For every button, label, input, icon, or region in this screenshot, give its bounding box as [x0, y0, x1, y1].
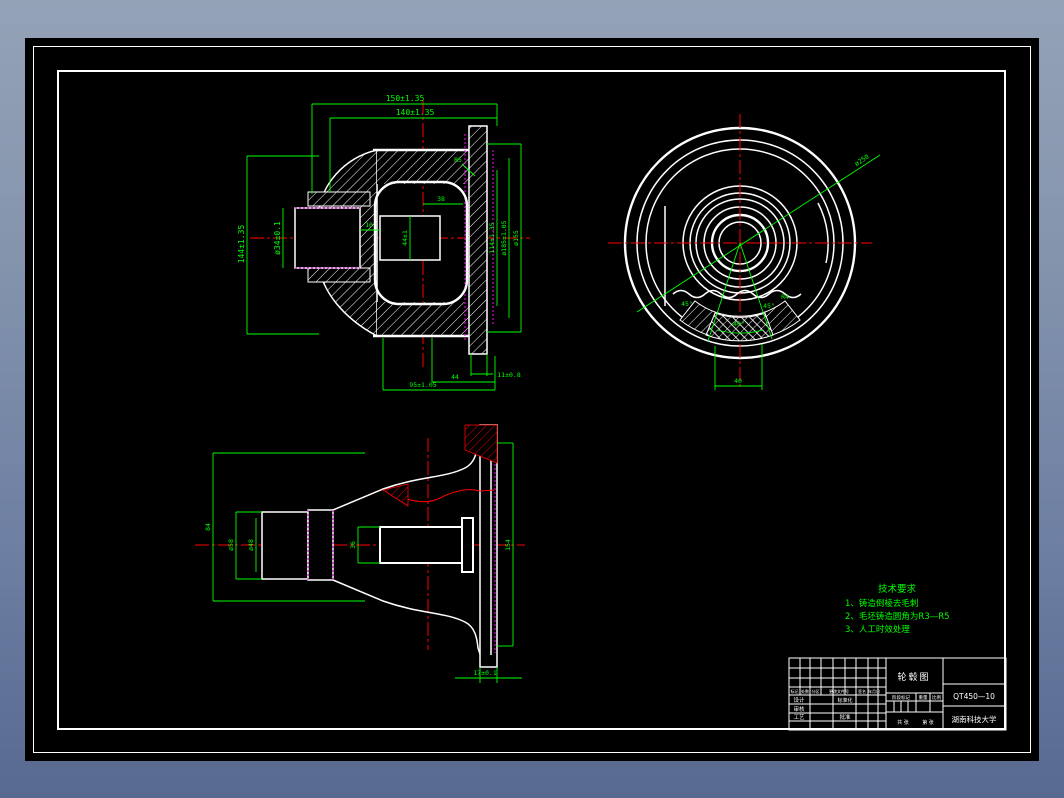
dim-pitch-dia: ø155 [512, 230, 520, 246]
dim-slot: 36 [349, 541, 357, 549]
tech-requirement-item: 1、铸造倒棱去毛刺 [845, 598, 918, 609]
dim-fillet-r5: R5 [454, 156, 462, 164]
label-standardization: 标准化 [837, 697, 852, 704]
label-weight: 重量 [919, 694, 928, 701]
dim-height-left: 144±1.35 [237, 225, 246, 264]
side-view: 84 ø58 ø48 36 154 17±0.1 [195, 425, 525, 683]
front-view: ø250 40° 45° 45° R4 40 [608, 114, 880, 390]
title-block: 轮毂图 QT450—10 湖南科技大学 标记 处数 分区 更改文件号 签名 年月… [789, 658, 1006, 730]
dim-width-inner: 140±1.35 [396, 108, 435, 117]
label-zone: 分区 [812, 688, 820, 694]
dim-boss-len: 84 [204, 523, 212, 531]
label-review: 审核 [793, 705, 805, 713]
label-signature: 签名 [858, 688, 866, 694]
label-scale: 比例 [932, 694, 941, 701]
label-change-file: 更改文件号 [829, 688, 849, 694]
dim-step: 10 [365, 221, 373, 229]
dim-bore: 44±1 [401, 230, 409, 246]
dim-bottom-outer: 95±1.05 [409, 381, 436, 389]
dim-width-outer: 150±1.35 [386, 94, 425, 103]
drawing-name: 轮毂图 [897, 671, 930, 683]
dim-flange-t: 17±0.1 [473, 669, 497, 677]
dim-dia-outer: ø58 [227, 539, 235, 551]
dim-angle-center: 40° [733, 320, 745, 328]
material-spec: QT450—10 [953, 692, 995, 701]
tech-requirement-item: 3、人工时效处理 [845, 624, 910, 635]
dim-shaft-dia: ø34±0.1 [273, 221, 282, 255]
tech-requirement-item: 2、毛坯铸造圆角为R3—R5 [845, 611, 950, 622]
organization-name: 湖南科技大学 [952, 714, 997, 724]
label-sheets: 共 张 [897, 719, 909, 726]
label-design: 设计 [793, 696, 805, 704]
label-approve: 批准 [839, 713, 851, 721]
dim-flange-dia: ø185±1.05 [500, 220, 508, 255]
cad-drawing: 150±1.35 140±1.35 144±1.35 ø34±0.1 10 38… [25, 38, 1039, 761]
label-stage-mark: 阶段标记 [892, 694, 910, 701]
desktop-background: 150±1.35 140±1.35 144±1.35 ø34±0.1 10 38… [0, 0, 1064, 798]
tech-requirements-title: 技术要求 [878, 583, 917, 595]
section-view: 150±1.35 140±1.35 144±1.35 ø34±0.1 10 38… [237, 94, 530, 390]
dim-angle-left: 45° [681, 300, 693, 308]
dim-cavity: 38 [437, 195, 445, 203]
label-date: 年月日 [868, 688, 880, 694]
dim-rim: 11±0.8 [497, 371, 521, 379]
label-count: 处数 [801, 688, 809, 694]
dim-leader-dia: ø250 [853, 153, 871, 168]
label-process: 工艺 [793, 714, 805, 721]
cad-drawing-canvas: 150±1.35 140±1.35 144±1.35 ø34±0.1 10 38… [25, 38, 1039, 761]
dim-fillet-r4: R4 [781, 293, 789, 301]
label-page: 第 张 [922, 719, 934, 726]
dim-angle-right: 45° [763, 302, 775, 310]
dim-flange-h: 154 [504, 539, 512, 551]
tech-requirements: 技术要求 1、铸造倒棱去毛刺 2、毛坯铸造圆角为R3—R5 3、人工时效处理 [845, 583, 950, 635]
dim-bottom-inner: 44 [451, 373, 459, 381]
label-mark: 标记 [791, 688, 799, 694]
dim-flange-h: 114±1.35 [488, 222, 496, 253]
dim-slot-width: 40 [734, 377, 742, 385]
dim-dia-inner: ø48 [247, 539, 255, 551]
